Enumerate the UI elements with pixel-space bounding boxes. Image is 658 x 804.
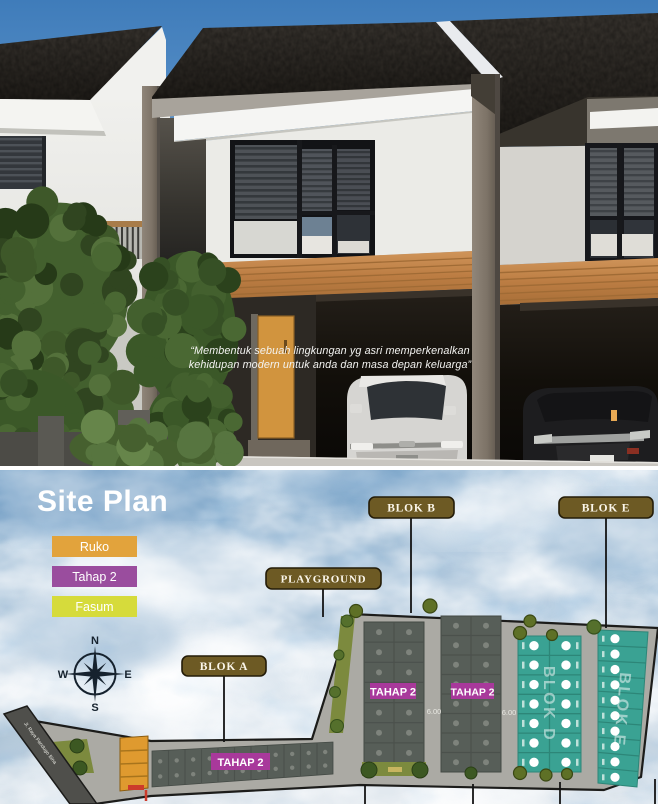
svg-text:BLOK B: BLOK B	[387, 503, 436, 515]
svg-text:BLOK E: BLOK E	[582, 503, 631, 515]
svg-text:S: S	[91, 702, 98, 714]
svg-text:TAHAP 2: TAHAP 2	[370, 687, 416, 699]
svg-text:Site Plan: Site Plan	[37, 485, 168, 518]
svg-text:“Membentuk sebuah lingkungan y: “Membentuk sebuah lingkungan yg asri mem…	[190, 345, 469, 357]
svg-text:PLAYGROUND: PLAYGROUND	[281, 574, 367, 586]
svg-text:TAHAP 2: TAHAP 2	[217, 757, 263, 769]
svg-text:kehidupan modern untuk anda da: kehidupan modern untuk anda dan masa dep…	[189, 359, 472, 371]
svg-text:TAHAP 2: TAHAP 2	[451, 687, 495, 699]
svg-text:Tahap 2: Tahap 2	[72, 570, 117, 584]
svg-text:N: N	[91, 635, 99, 647]
svg-text:6.00: 6.00	[502, 708, 517, 717]
svg-text:Ruko: Ruko	[80, 540, 109, 554]
svg-text:E: E	[124, 669, 131, 681]
svg-text:BLOK D: BLOK D	[540, 666, 557, 742]
svg-text:6.00: 6.00	[427, 707, 442, 716]
svg-text:BLOK A: BLOK A	[200, 661, 249, 673]
svg-text:Fasum: Fasum	[75, 600, 113, 614]
svg-text:W: W	[58, 669, 69, 681]
